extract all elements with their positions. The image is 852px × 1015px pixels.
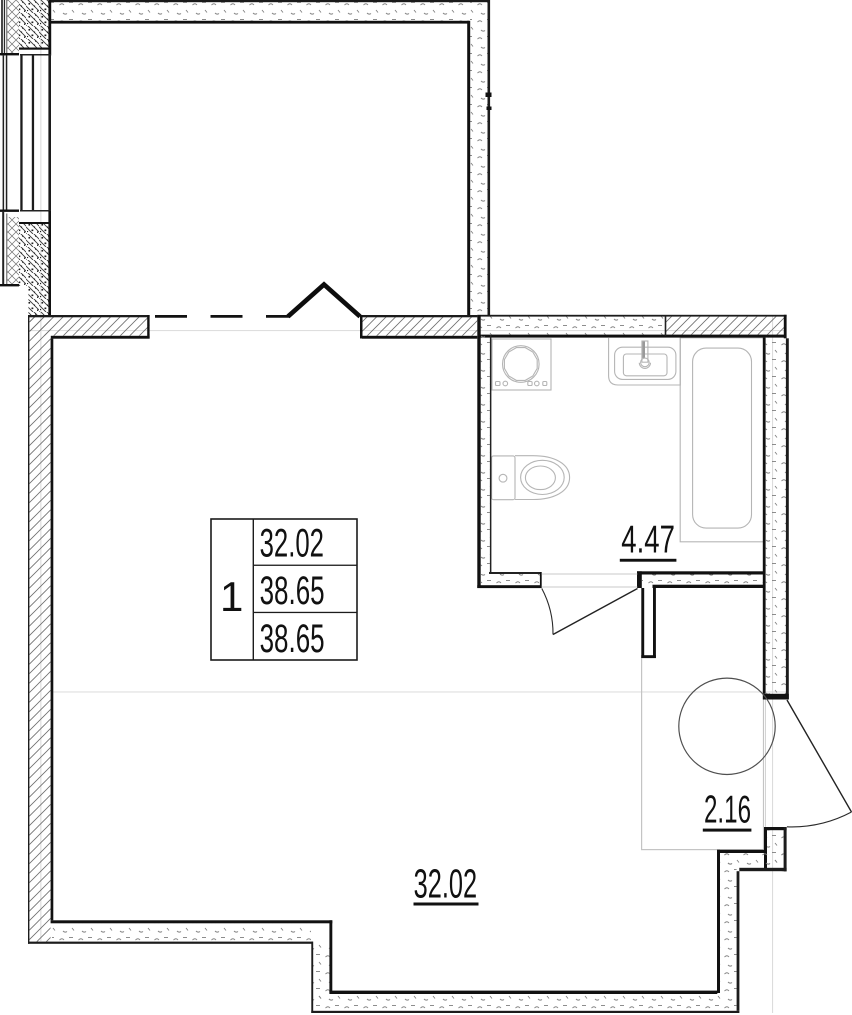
svg-text:2.16: 2.16 bbox=[704, 788, 751, 831]
svg-text:4.47: 4.47 bbox=[621, 518, 675, 561]
svg-text:1: 1 bbox=[220, 573, 243, 620]
svg-text:32.02: 32.02 bbox=[414, 861, 478, 907]
svg-text:38.65: 38.65 bbox=[260, 617, 325, 661]
svg-text:38.65: 38.65 bbox=[260, 569, 325, 613]
svg-text:32.02: 32.02 bbox=[260, 522, 324, 566]
